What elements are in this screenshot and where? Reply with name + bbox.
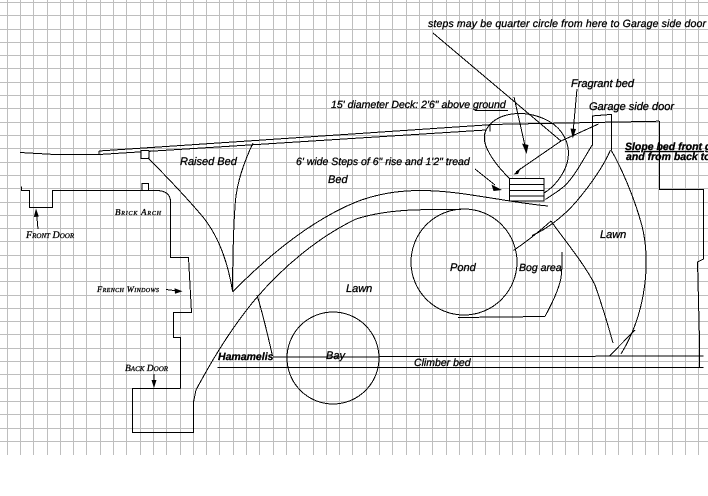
svg-text:Lawn: Lawn bbox=[600, 229, 626, 241]
svg-text:Hamamelis: Hamamelis bbox=[218, 351, 274, 363]
svg-text:Garage side door: Garage side door bbox=[589, 101, 675, 113]
svg-text:6' wide Steps of 6" rise and 1: 6' wide Steps of 6" rise and 1'2" tread bbox=[296, 156, 471, 168]
svg-text:Pond: Pond bbox=[450, 262, 477, 274]
svg-text:Bay: Bay bbox=[326, 350, 346, 362]
svg-text:Bed: Bed bbox=[328, 174, 348, 186]
svg-text:French Windows: French Windows bbox=[96, 284, 159, 294]
svg-text:Fragrant bed: Fragrant bed bbox=[571, 78, 635, 90]
svg-text:Raised Bed: Raised Bed bbox=[180, 156, 238, 168]
svg-text:and from back to fr: and from back to fr bbox=[626, 151, 708, 163]
svg-text:Lawn: Lawn bbox=[346, 283, 372, 295]
svg-text:Climber bed: Climber bed bbox=[414, 357, 472, 369]
svg-text:Brick Arch: Brick Arch bbox=[115, 207, 162, 217]
svg-text:Front Door: Front Door bbox=[25, 230, 75, 241]
svg-text:Bog area: Bog area bbox=[519, 262, 562, 274]
svg-text:steps may be quarter circle fr: steps may be quarter circle from here to… bbox=[428, 18, 707, 30]
svg-text:15' diameter Deck: 2'6" above: 15' diameter Deck: 2'6" above ground bbox=[331, 99, 507, 111]
svg-text:Back Door: Back Door bbox=[125, 364, 169, 374]
